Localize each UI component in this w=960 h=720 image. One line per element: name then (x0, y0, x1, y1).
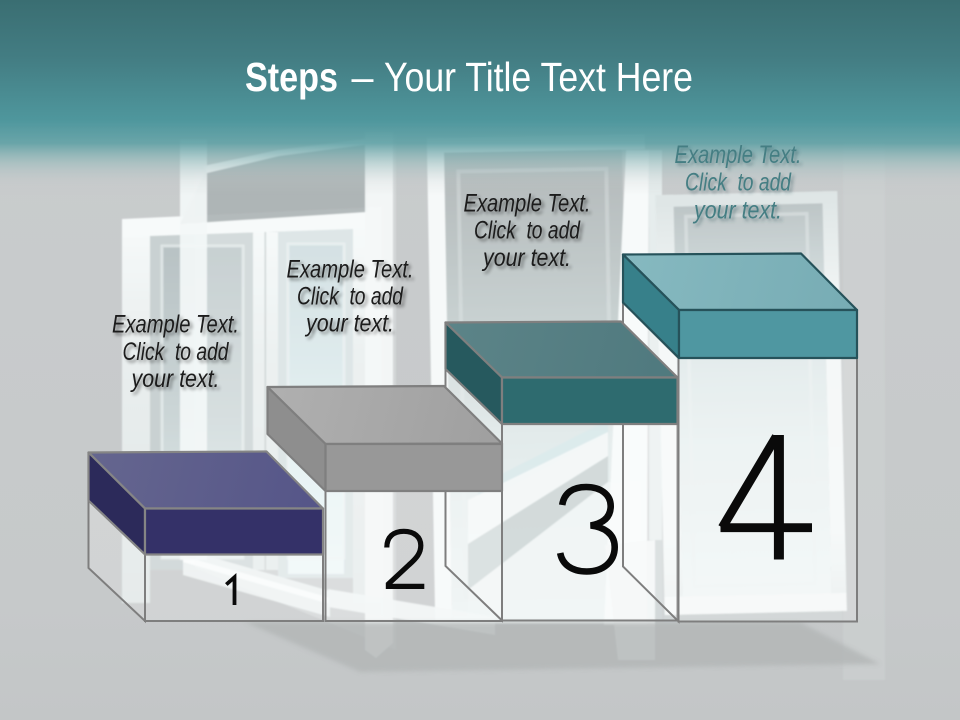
svg-text:your text.: your text. (304, 310, 394, 338)
svg-text:your text.: your text. (130, 365, 220, 393)
svg-text:Example Text.: Example Text. (464, 190, 591, 218)
svg-text:your text.: your text. (692, 197, 782, 225)
svg-text:Example Text.: Example Text. (112, 311, 239, 339)
svg-text:Steps: Steps (245, 54, 338, 100)
svg-text:Example Text.: Example Text. (675, 141, 802, 169)
svg-text:Click to add: Click to add (685, 169, 792, 197)
svg-text:Your Title Text Here: Your Title Text Here (384, 54, 693, 100)
svg-text:Click to add: Click to add (123, 338, 230, 366)
svg-text:Click to add: Click to add (297, 283, 404, 311)
svg-text:your text.: your text. (481, 244, 571, 272)
svg-text:Example Text.: Example Text. (287, 256, 414, 284)
svg-text:–: – (352, 54, 374, 100)
svg-text:Click to add: Click to add (474, 217, 581, 245)
